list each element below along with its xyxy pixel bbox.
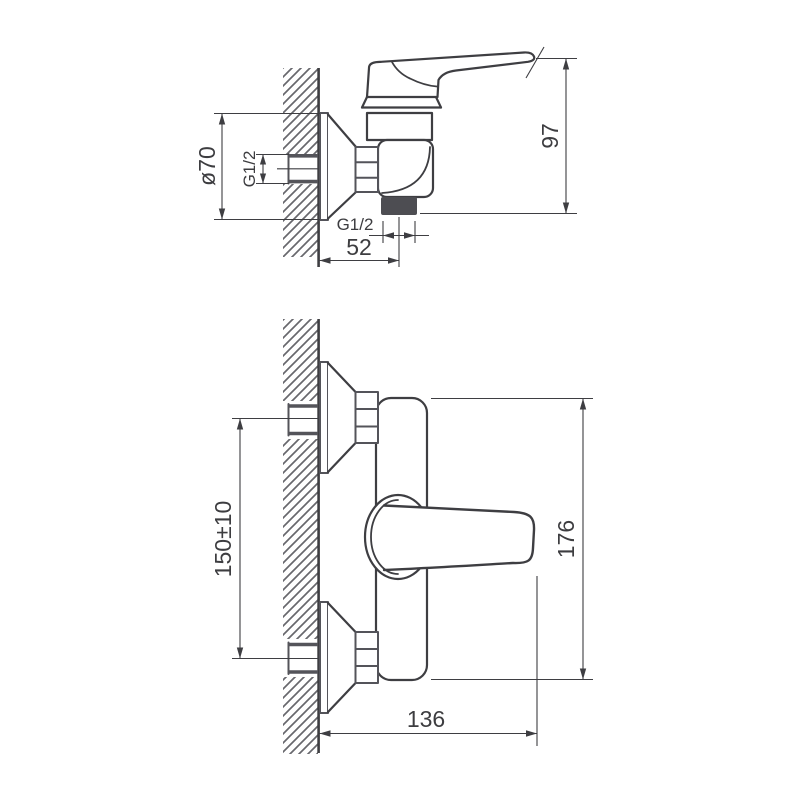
valve-body-upper	[367, 113, 432, 140]
arrowhead-down-icon	[219, 209, 225, 220]
arrowhead-down-icon	[237, 648, 243, 659]
dim-label-height: 97	[537, 123, 563, 149]
inlet-pipe-stub	[277, 154, 318, 184]
arrowhead-up-icon	[563, 59, 569, 70]
nut-body	[356, 147, 379, 192]
arrowhead-up-icon	[580, 399, 586, 410]
wall-hatching-middle	[283, 439, 318, 639]
nut-body	[356, 632, 379, 683]
handle-front	[365, 495, 534, 579]
dim-label-overall-height: 176	[553, 520, 579, 558]
arrowhead-left-icon	[383, 232, 394, 238]
arrowhead-right-icon	[404, 232, 415, 238]
arrowhead-up-icon	[237, 419, 243, 430]
dim-inlet-spacing: 150±10	[210, 419, 243, 659]
arrowhead-down-icon	[580, 669, 586, 680]
wall-hatching-top	[283, 319, 318, 401]
handle-skirt-left	[362, 97, 367, 108]
shower-mixer-technical-drawing: ø70 G1/2 G1/2 52	[0, 0, 800, 800]
dim-label-overall-width: 136	[407, 706, 445, 732]
connection-nut	[356, 147, 379, 192]
escutcheon-top	[320, 362, 378, 473]
wall-hatching-bottom	[283, 677, 318, 754]
dim-label-diameter: ø70	[194, 146, 220, 186]
handle-cap-and-lever	[367, 52, 534, 97]
escutcheon-plate	[320, 602, 328, 713]
hose-outlet	[381, 197, 417, 215]
dim-label-outlet-thread: G1/2	[337, 215, 374, 234]
nut-body	[356, 392, 379, 443]
escutcheon-cone-fill	[328, 363, 356, 472]
escutcheon-cone-fill	[328, 603, 356, 712]
technical-drawing-page: ø70 G1/2 G1/2 52	[0, 0, 800, 800]
dim-label-inlet-thread: G1/2	[240, 151, 259, 188]
arrowhead-right-icon	[526, 730, 537, 736]
dim-overall-height: 176	[553, 399, 586, 680]
wall-hatching-lower	[283, 184, 318, 257]
escutcheon-plate	[320, 362, 328, 473]
inlet-pipe-stub-top	[288, 404, 318, 436]
escutcheon-bottom	[320, 602, 378, 713]
arrowhead-down-icon	[260, 174, 266, 184]
arrowhead-left-icon	[320, 257, 331, 263]
handle-lever	[384, 506, 534, 571]
arrowhead-left-icon	[320, 730, 331, 736]
arrowhead-up-icon	[219, 114, 225, 125]
arrowhead-up-icon	[260, 155, 266, 165]
front-view: 150±10 176 136	[210, 319, 593, 754]
arrowhead-down-icon	[563, 203, 569, 214]
escutcheon-plate	[320, 113, 328, 220]
handle-side	[362, 52, 534, 107]
dim-label-outlet-offset: 52	[346, 234, 372, 260]
wall-hatching-upper	[283, 68, 318, 154]
arrowhead-right-icon	[388, 257, 399, 263]
dim-label-inlet-spacing: 150±10	[210, 501, 236, 578]
side-view: ø70 G1/2 G1/2 52	[194, 47, 577, 267]
handle-skirt-right	[436, 97, 441, 108]
